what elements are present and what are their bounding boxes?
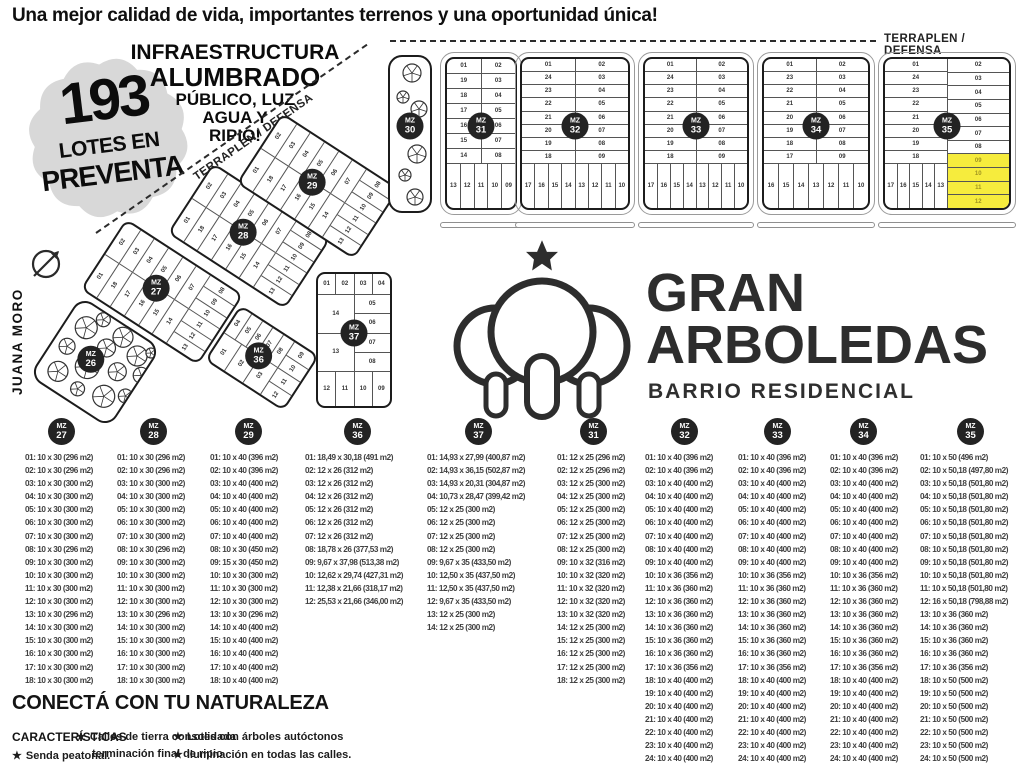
lot-item: 09: 9,67 x 37,98 (513,38 m2)	[305, 556, 417, 569]
lot-item: 22: 10 x 50 (500 m2)	[920, 726, 1024, 739]
lot-item: 16: 10 x 40 (400 m2)	[210, 647, 322, 660]
lot-item: 13: 12 x 25 (300 m2)	[427, 608, 539, 621]
star-bullet-icon: ★	[173, 749, 183, 761]
lot-item: 06: 12 x 25 (300 m2)	[427, 516, 539, 529]
mz-badge-29: MZ29	[235, 418, 262, 445]
lot-item: 06: 12 x 26 (312 m2)	[305, 516, 417, 529]
lot-item: 08: 18,78 x 26 (377,53 m2)	[305, 543, 417, 556]
lot-item: 15: 10 x 36 (360 m2)	[920, 634, 1024, 647]
lot-item: 21: 10 x 50 (500 m2)	[920, 713, 1024, 726]
mz-badge-33: MZ33	[764, 418, 791, 445]
lot-item: 15: 10 x 40 (400 m2)	[210, 634, 322, 647]
lot-item: 02: 12 x 26 (312 m2)	[305, 464, 417, 477]
lot-item: 08: 12 x 25 (300 m2)	[427, 543, 539, 556]
list-column-mz36: MZ3601: 18,49 x 30,18 (491 m2)02: 12 x 2…	[305, 418, 417, 608]
list-column-mz37: MZ3701: 14,93 x 27,99 (400,87 m2)02: 14,…	[427, 418, 539, 634]
lot-item: 07: 12 x 26 (312 m2)	[305, 530, 417, 543]
lot-item: 07: 12 x 25 (300 m2)	[427, 530, 539, 543]
lot-item: 19: 10 x 50 (500 m2)	[920, 687, 1024, 700]
lot-item: 05: 10 x 50,18 (501,80 m2)	[920, 503, 1024, 516]
lot-item: 02: 10 x 50,18 (497,80 m2)	[920, 464, 1024, 477]
lot-item: 08: 10 x 50,18 (501,80 m2)	[920, 543, 1024, 556]
mz-badge-27: MZ27	[48, 418, 75, 445]
lot-item: 01: 18,49 x 30,18 (491 m2)	[305, 451, 417, 464]
lot-item: 02: 14,93 x 36,15 (502,87 m2)	[427, 464, 539, 477]
lot-item: 16: 10 x 36 (360 m2)	[920, 647, 1024, 660]
star-bullet-icon: ★	[76, 731, 86, 743]
lot-item: 01: 14,93 x 27,99 (400,87 m2)	[427, 451, 539, 464]
lot-item: 09: 9,67 x 35 (433,50 m2)	[427, 556, 539, 569]
lot-item: 13: 10 x 30 (296 m2)	[210, 608, 322, 621]
mz-badge-28: MZ28	[140, 418, 167, 445]
lot-listings: MZ2701: 10 x 30 (296 m2)02: 10 x 30 (296…	[0, 0, 1024, 768]
lot-item: 05: 12 x 26 (312 m2)	[305, 503, 417, 516]
feature-text: Iluminación en todas las calles.	[187, 749, 351, 761]
lot-item: 10: 12,50 x 35 (437,50 m2)	[427, 569, 539, 582]
lot-item: 09: 10 x 50,18 (501,80 m2)	[920, 556, 1024, 569]
footer-title: CONECTÁ CON TU NATURALEZA	[12, 692, 329, 715]
lot-item: 18: 10 x 50 (500 m2)	[920, 674, 1024, 687]
mz-badge-36: MZ36	[344, 418, 371, 445]
lot-item: 10: 12,62 x 29,74 (427,31 m2)	[305, 569, 417, 582]
mz-badge-37: MZ37	[465, 418, 492, 445]
mz-badge-34: MZ34	[850, 418, 877, 445]
feature-text: Lotes con árboles autóctonos	[187, 731, 343, 743]
lot-item: 12: 16 x 50,18 (798,88 m2)	[920, 595, 1024, 608]
mz-badge-32: MZ32	[671, 418, 698, 445]
lot-item: 03: 14,93 x 20,31 (304,87 m2)	[427, 477, 539, 490]
lot-item: 06: 10 x 50,18 (501,80 m2)	[920, 516, 1024, 529]
star-bullet-icon: ★	[173, 731, 183, 743]
feature-arboles: ★Lotes con árboles autóctonos	[173, 730, 343, 743]
lot-item: 24: 10 x 50 (500 m2)	[920, 752, 1024, 765]
lot-item: 04: 10 x 50,18 (501,80 m2)	[920, 490, 1024, 503]
lot-item: 18: 10 x 40 (400 m2)	[210, 674, 322, 687]
lot-item: 03: 10 x 50,18 (501,80 m2)	[920, 477, 1024, 490]
lot-item: 14: 12 x 25 (300 m2)	[427, 621, 539, 634]
lot-item: 17: 10 x 36 (356 m2)	[920, 661, 1024, 674]
lot-item: 07: 10 x 50,18 (501,80 m2)	[920, 530, 1024, 543]
star-bullet-icon: ★	[12, 750, 22, 762]
lot-item: 05: 12 x 25 (300 m2)	[427, 503, 539, 516]
lot-item: 23: 10 x 50 (500 m2)	[920, 739, 1024, 752]
feature-iluminacion: ★Iluminación en todas las calles.	[173, 748, 351, 761]
lot-item: 14: 10 x 36 (360 m2)	[920, 621, 1024, 634]
lot-item: 11: 12,38 x 21,66 (318,17 m2)	[305, 582, 417, 595]
lot-item: 04: 12 x 26 (312 m2)	[305, 490, 417, 503]
lot-item: 10: 10 x 50,18 (501,80 m2)	[920, 569, 1024, 582]
lot-item: 03: 12 x 26 (312 m2)	[305, 477, 417, 490]
lot-item: 12: 25,53 x 21,66 (346,00 m2)	[305, 595, 417, 608]
lot-item: 04: 10,73 x 28,47 (399,42 m2)	[427, 490, 539, 503]
lot-item: 12: 9,67 x 35 (433,50 m2)	[427, 595, 539, 608]
lot-item: 20: 10 x 50 (500 m2)	[920, 700, 1024, 713]
lot-item: 11: 12,50 x 35 (437,50 m2)	[427, 582, 539, 595]
lot-item: 13: 10 x 36 (360 m2)	[920, 608, 1024, 621]
lot-item: 11: 10 x 50,18 (501,80 m2)	[920, 582, 1024, 595]
lot-item: 17: 10 x 40 (400 m2)	[210, 661, 322, 674]
mz-badge-31: MZ31	[580, 418, 607, 445]
lot-item: 14: 10 x 40 (400 m2)	[210, 621, 322, 634]
lot-item: 01: 10 x 50 (496 m2)	[920, 451, 1024, 464]
list-column-mz35: MZ3501: 10 x 50 (496 m2)02: 10 x 50,18 (…	[920, 418, 1024, 765]
mz-badge-35: MZ35	[957, 418, 984, 445]
